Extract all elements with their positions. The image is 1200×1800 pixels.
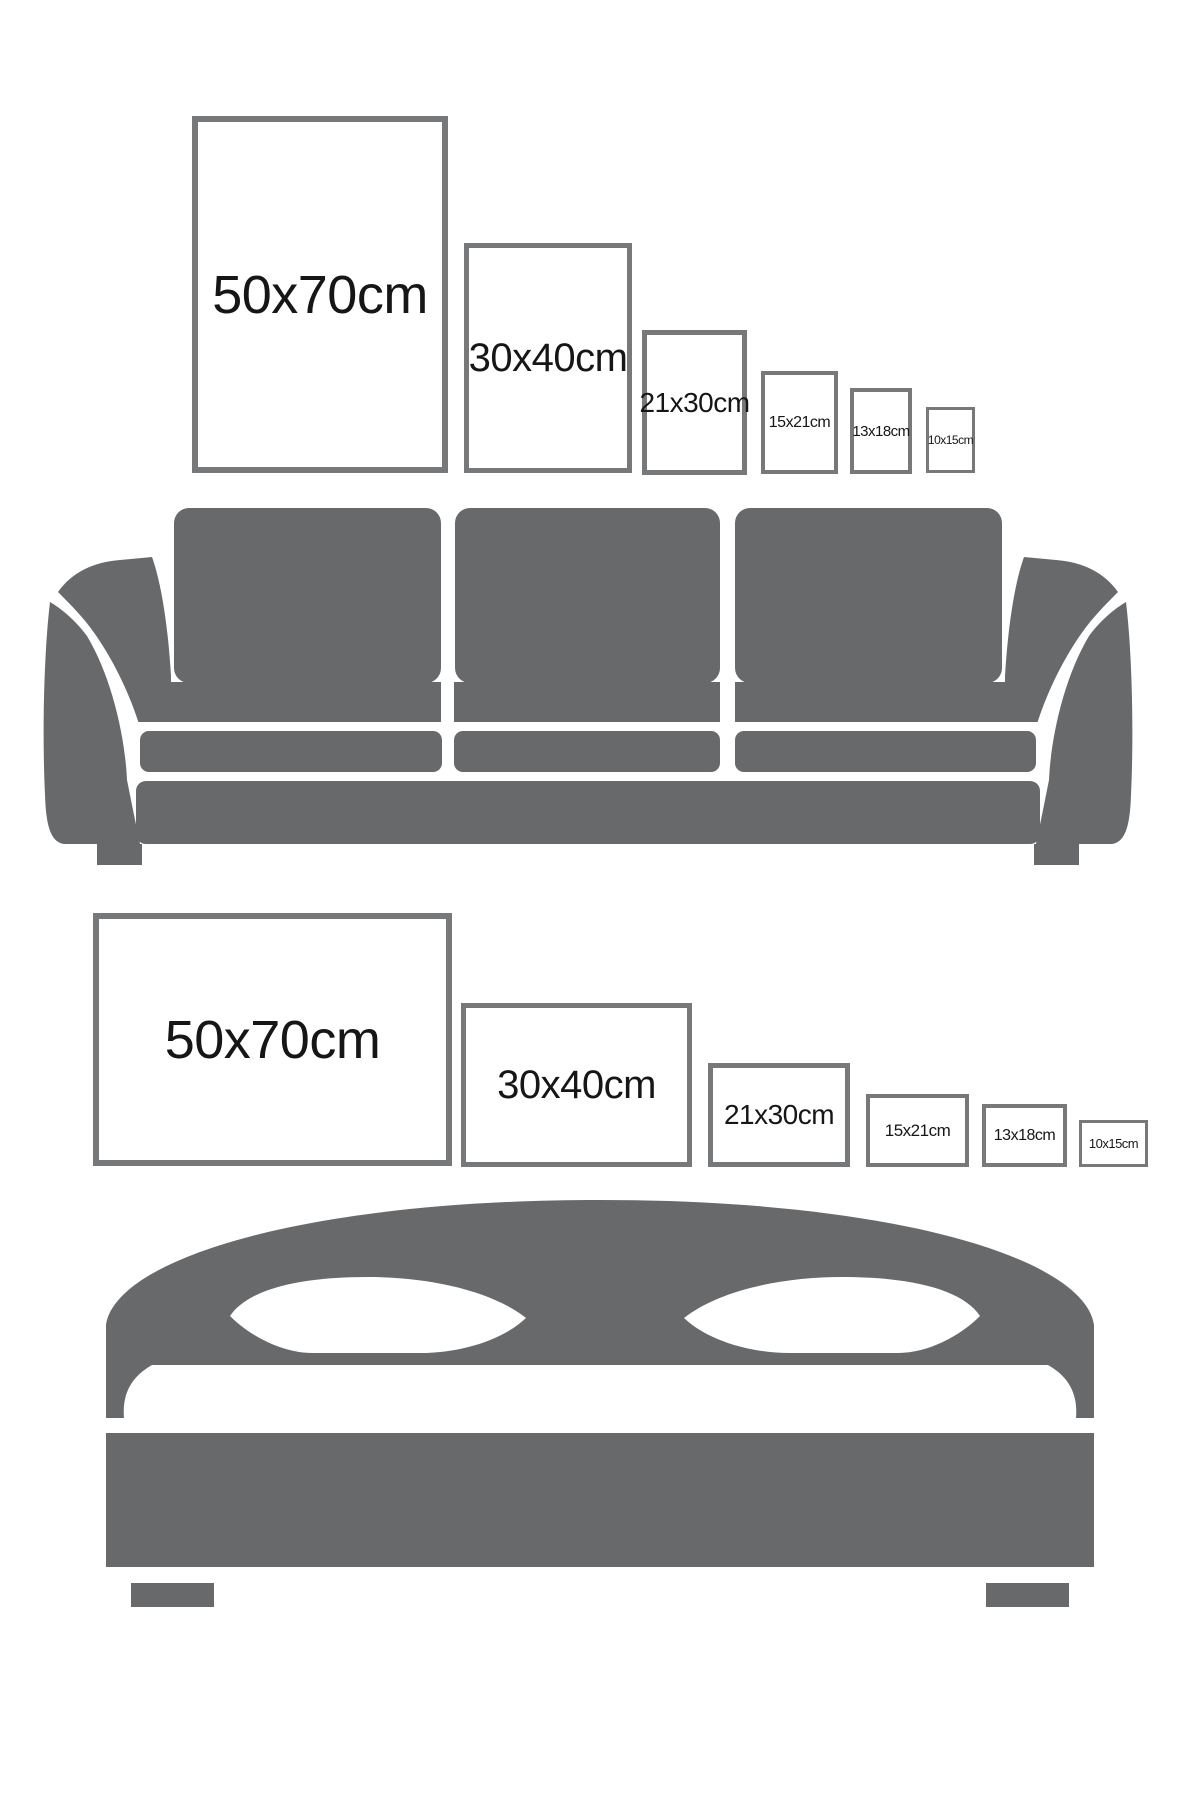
size-frame-portrait-30x40: 30x40cm [464, 243, 632, 473]
size-label: 30x40cm [497, 1065, 656, 1105]
size-label: 21x30cm [724, 1101, 834, 1129]
size-frame-portrait-10x15: 10x15cm [926, 407, 975, 473]
size-frame-landscape-30x40: 30x40cm [461, 1003, 692, 1167]
size-label: 15x21cm [885, 1122, 950, 1139]
size-label: 13x18cm [852, 424, 909, 439]
size-label: 50x70cm [165, 1013, 381, 1067]
size-label: 21x30cm [639, 389, 749, 417]
size-frame-portrait-13x18: 13x18cm [850, 388, 912, 474]
size-frame-portrait-21x30: 21x30cm [642, 330, 747, 475]
size-guide-page: 50x70cm 30x40cm 21x30cm 15x21cm 13x18cm … [0, 0, 1200, 1800]
size-frame-landscape-50x70: 50x70cm [93, 913, 452, 1166]
size-label: 50x70cm [212, 268, 428, 322]
size-frame-portrait-15x21: 15x21cm [761, 371, 838, 474]
bed-icon [0, 1190, 1200, 1620]
size-label: 10x15cm [928, 434, 973, 446]
size-frame-landscape-10x15: 10x15cm [1079, 1120, 1148, 1167]
size-frame-landscape-21x30: 21x30cm [708, 1063, 850, 1167]
sofa-icon [0, 480, 1200, 880]
size-label: 30x40cm [469, 338, 628, 378]
size-frame-landscape-13x18: 13x18cm [982, 1104, 1067, 1167]
size-frame-portrait-50x70: 50x70cm [192, 116, 448, 473]
size-frame-landscape-15x21: 15x21cm [866, 1094, 969, 1167]
size-label: 15x21cm [769, 415, 830, 431]
size-label: 13x18cm [994, 1128, 1055, 1144]
size-label: 10x15cm [1089, 1137, 1138, 1150]
